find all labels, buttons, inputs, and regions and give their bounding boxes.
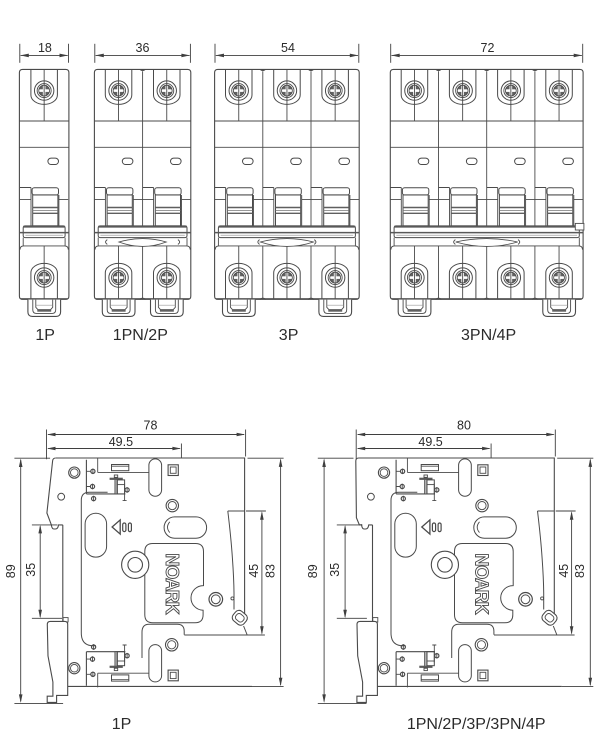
svg-text:36: 36 (136, 41, 150, 55)
svg-text:89: 89 (4, 564, 18, 578)
svg-text:1P: 1P (35, 327, 55, 344)
svg-text:89: 89 (306, 564, 320, 578)
svg-text:35: 35 (328, 563, 342, 577)
svg-text:78: 78 (144, 418, 158, 432)
svg-text:35: 35 (24, 563, 38, 577)
svg-text:1PN/2P/3P/3PN/4P: 1PN/2P/3P/3PN/4P (407, 716, 546, 733)
svg-text:1PN/2P: 1PN/2P (113, 327, 168, 344)
svg-text:1P: 1P (112, 716, 132, 733)
svg-text:54: 54 (281, 41, 295, 55)
svg-text:80: 80 (457, 418, 471, 432)
svg-text:3PN/4P: 3PN/4P (461, 327, 516, 344)
svg-text:72: 72 (481, 41, 495, 55)
svg-text:3P: 3P (279, 327, 299, 344)
svg-text:18: 18 (38, 41, 52, 55)
